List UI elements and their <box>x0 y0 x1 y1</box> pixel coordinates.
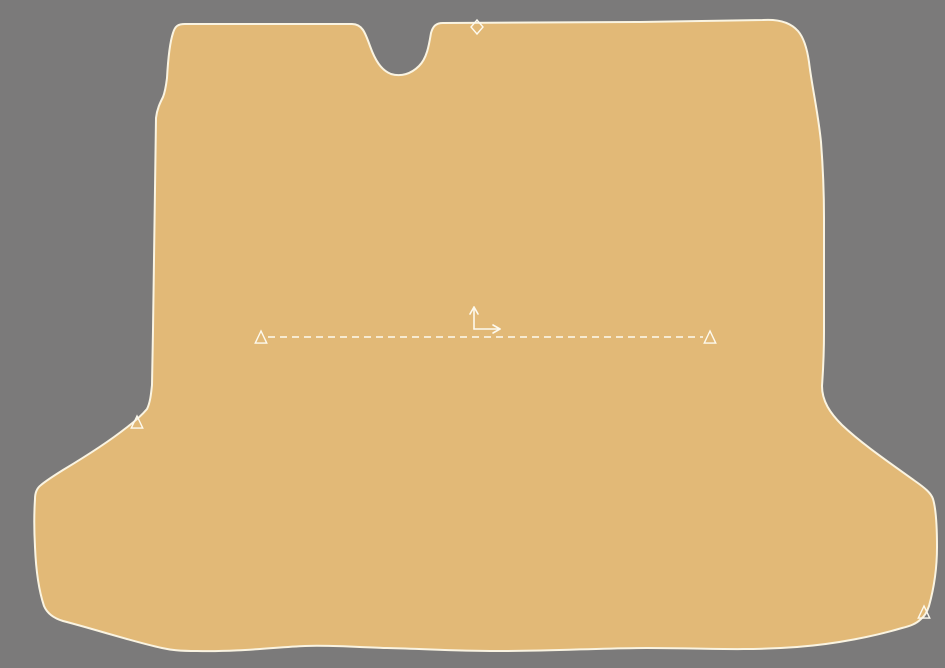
pattern-canvas[interactable] <box>0 0 945 668</box>
pattern-canvas-svg <box>0 0 945 668</box>
pattern-piece[interactable] <box>34 20 937 651</box>
